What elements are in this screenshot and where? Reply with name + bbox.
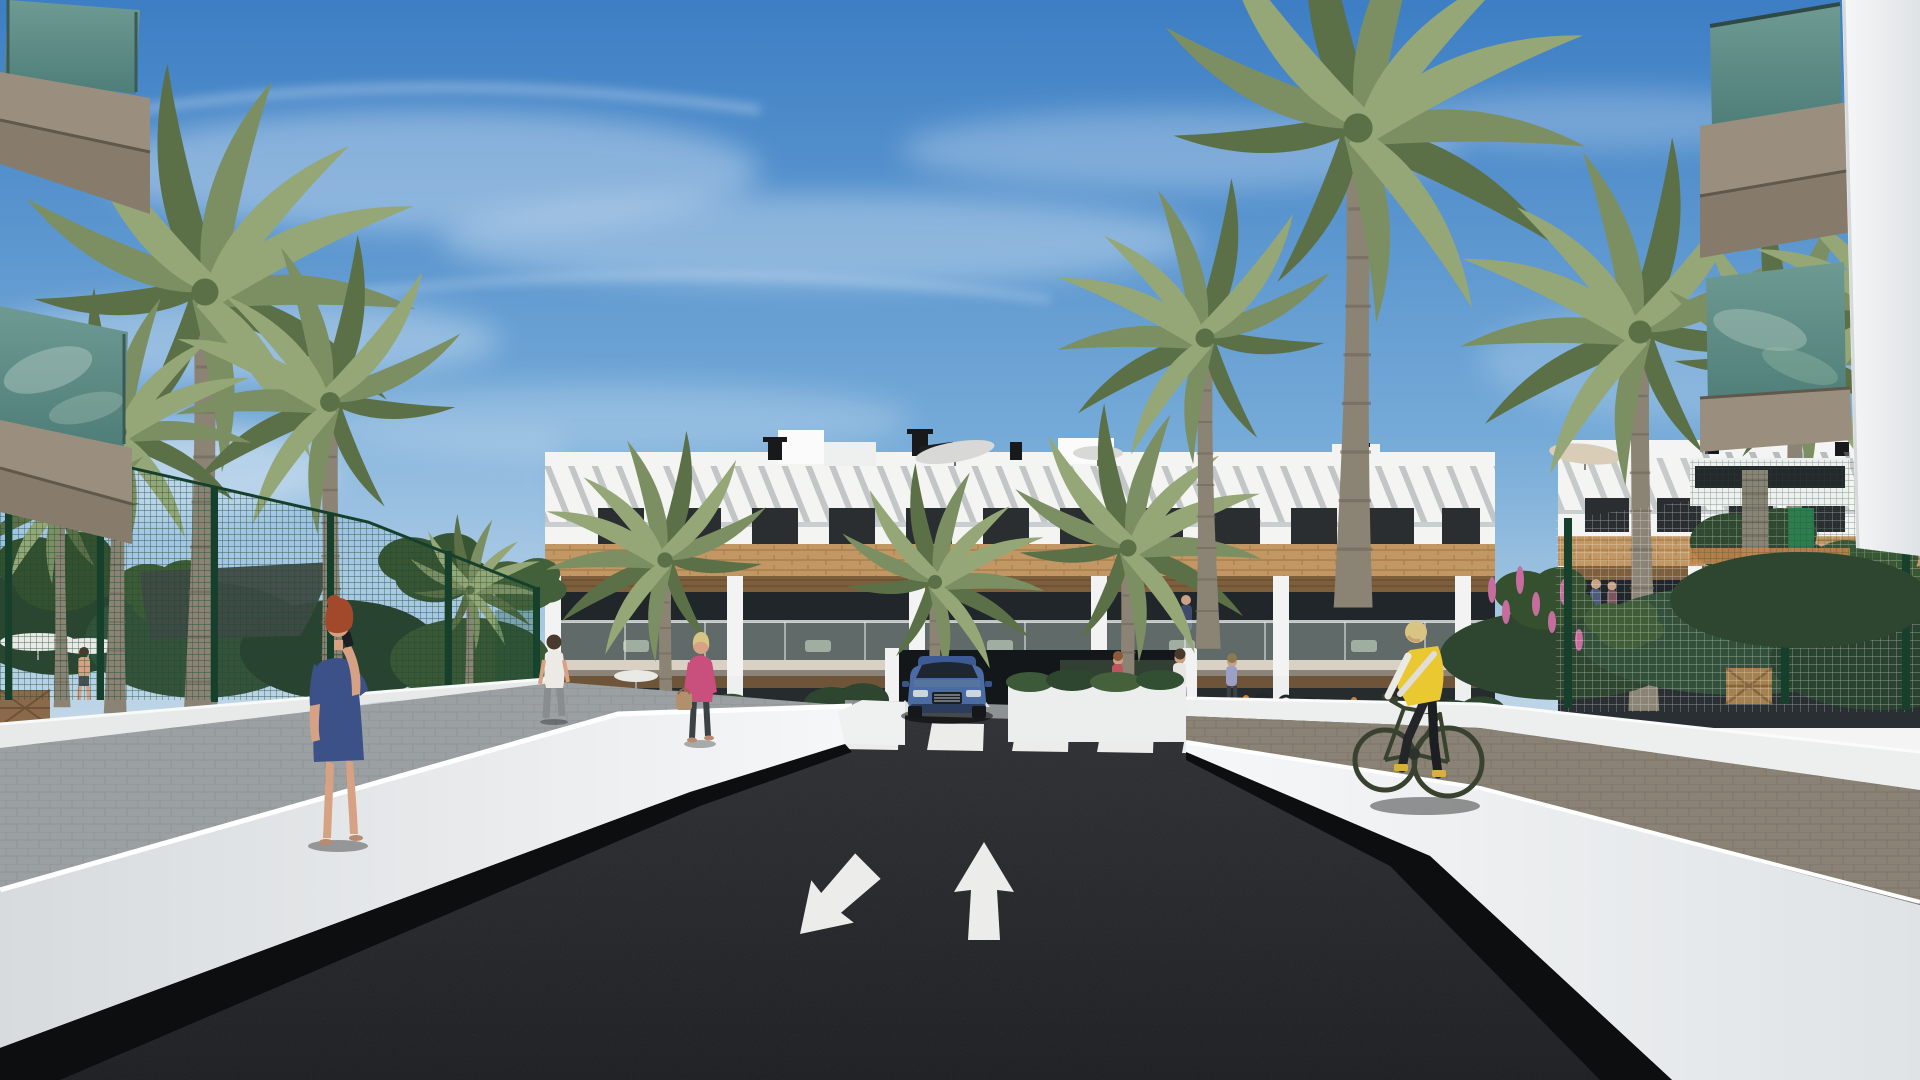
hedge-planter — [1006, 669, 1186, 742]
architectural-rendering — [0, 0, 1920, 1080]
foreground-balcony-right-upper — [1700, 4, 1852, 258]
headlight — [913, 690, 928, 697]
windshield — [916, 662, 978, 678]
foreground-balcony-right-lower — [1700, 262, 1852, 452]
crosswalk-stripe — [927, 723, 984, 751]
foreground-balcony-left-lower — [0, 306, 132, 544]
handbag — [676, 692, 692, 710]
headlight — [966, 690, 981, 697]
